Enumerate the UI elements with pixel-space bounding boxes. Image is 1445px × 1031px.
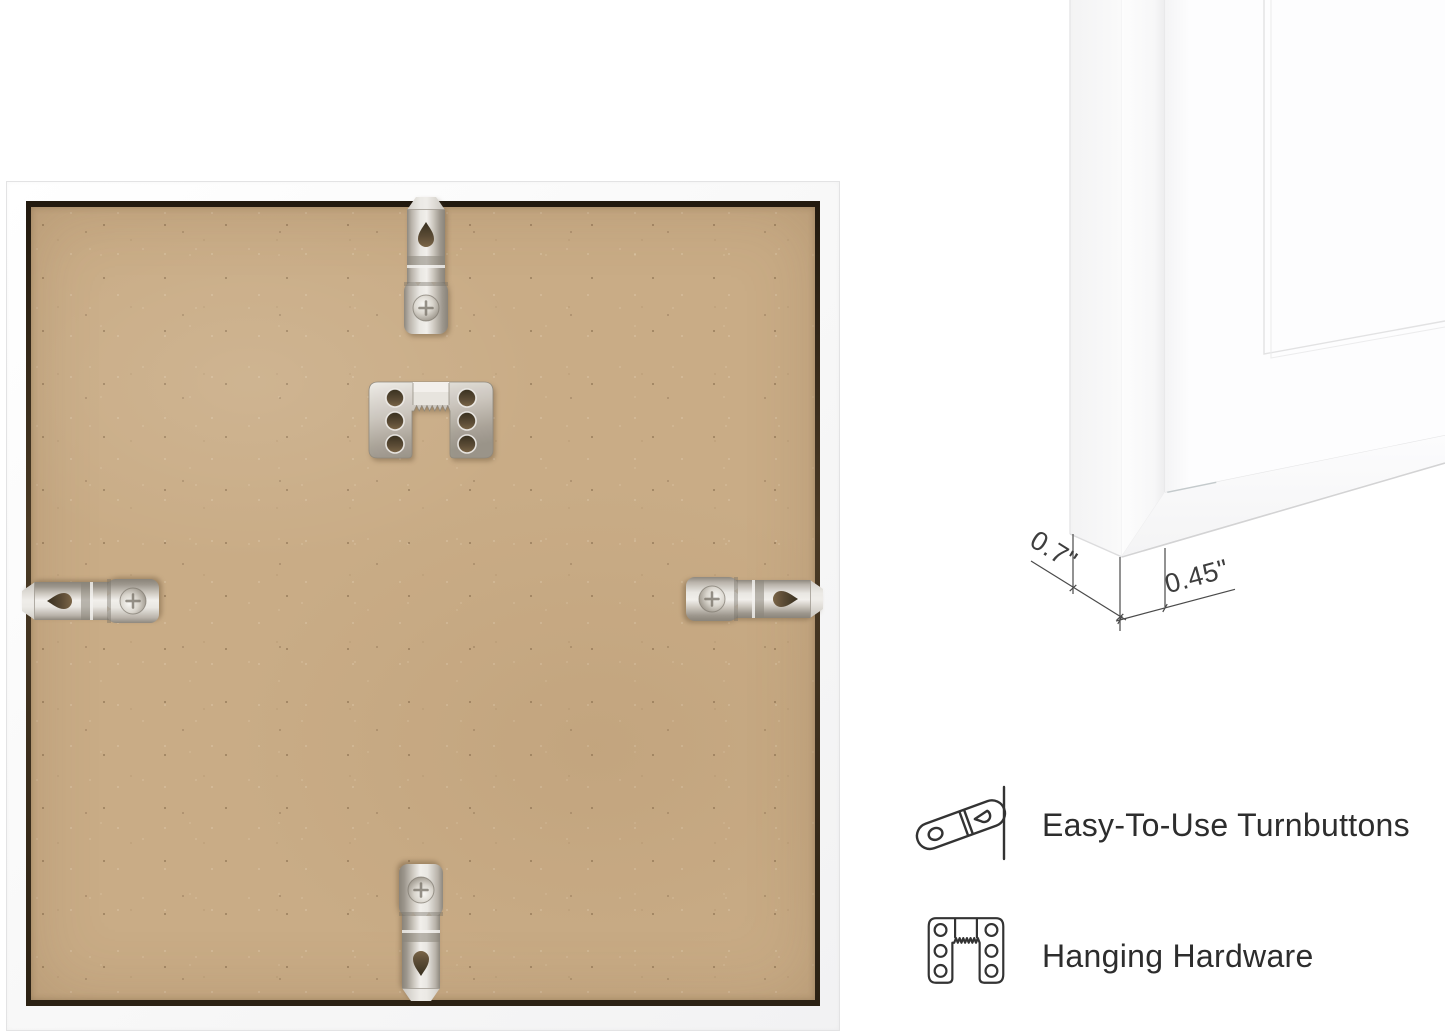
sawtooth-hanger-plate: [366, 374, 496, 464]
sawtooth-hanger-icon: [918, 910, 1014, 990]
turnbutton-clip-bottom: [398, 862, 444, 1002]
width-dimension-label: 0.45": [1162, 553, 1232, 599]
turnbutton-clip-right: [684, 576, 824, 622]
feature-label-turnbuttons: Easy-To-Use Turnbuttons: [1042, 807, 1410, 844]
depth-dimension-line: [1031, 561, 1126, 620]
feature-label-hanging-hardware: Hanging Hardware: [1042, 938, 1314, 975]
product-infographic: 0.7" 0.45" Easy-To-Use Turnbuttons Hangi…: [0, 0, 1445, 1031]
turnbutton-clip-left: [21, 578, 161, 624]
turnbutton-icon: [903, 781, 1011, 865]
frame-front-face: [1122, 0, 1165, 556]
mat-board: [1165, 0, 1445, 492]
frame-corner-detail: 0.7" 0.45": [1020, 0, 1445, 700]
frame-side-face: [1070, 0, 1122, 557]
turnbutton-clip-top: [403, 196, 449, 336]
